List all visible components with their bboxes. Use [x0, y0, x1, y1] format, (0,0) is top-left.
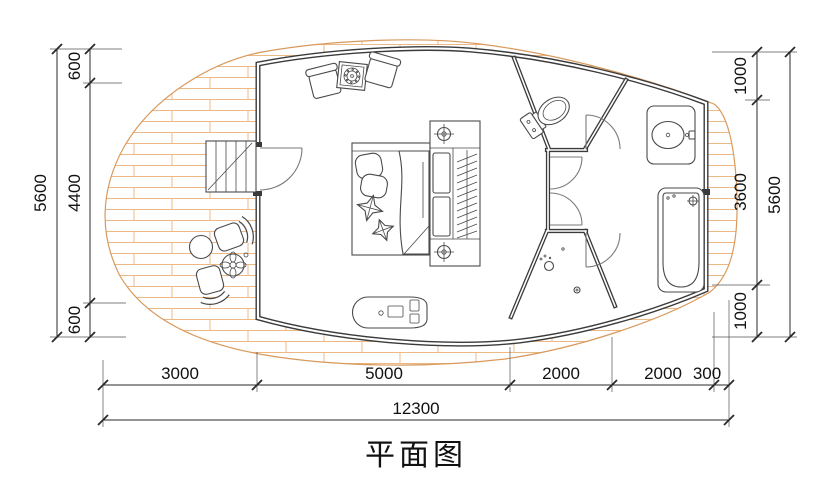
dim-label-bottom-seg4: 300 — [693, 364, 721, 383]
floor-plan-page: 5600 600 4400 600 1000 3600 1000 5600 30… — [0, 0, 837, 496]
sink — [647, 106, 695, 164]
dim-label-right-seg1: 3600 — [731, 173, 750, 211]
bench — [353, 297, 428, 328]
dim-label-right-total: 5600 — [765, 176, 784, 214]
entry-steps — [206, 141, 256, 192]
wardrobe — [430, 121, 480, 266]
dim-label-left-seg1: 4400 — [65, 174, 84, 212]
dim-label-bottom-seg0: 3000 — [161, 364, 199, 383]
bathtub — [658, 188, 704, 292]
floor-plan-svg: 5600 600 4400 600 1000 3600 1000 5600 30… — [0, 0, 837, 496]
dim-label-right-seg2: 1000 — [731, 292, 750, 330]
dim-label-bottom-total: 12300 — [392, 399, 439, 418]
dim-label-bottom-seg3: 2000 — [644, 364, 682, 383]
side-table — [337, 62, 368, 91]
dim-label-left-seg0: 600 — [65, 52, 84, 80]
bed — [352, 143, 430, 255]
dim-label-left-total: 5600 — [31, 174, 50, 212]
dim-label-left-seg2: 600 — [65, 306, 84, 334]
dim-label-bottom-seg1: 5000 — [365, 364, 403, 383]
dim-label-right-seg0: 1000 — [731, 57, 750, 95]
plan-title: 平面图 — [365, 439, 467, 472]
outdoor-table — [190, 236, 213, 259]
dim-label-bottom-seg2: 2000 — [542, 364, 580, 383]
duvet — [399, 151, 429, 254]
